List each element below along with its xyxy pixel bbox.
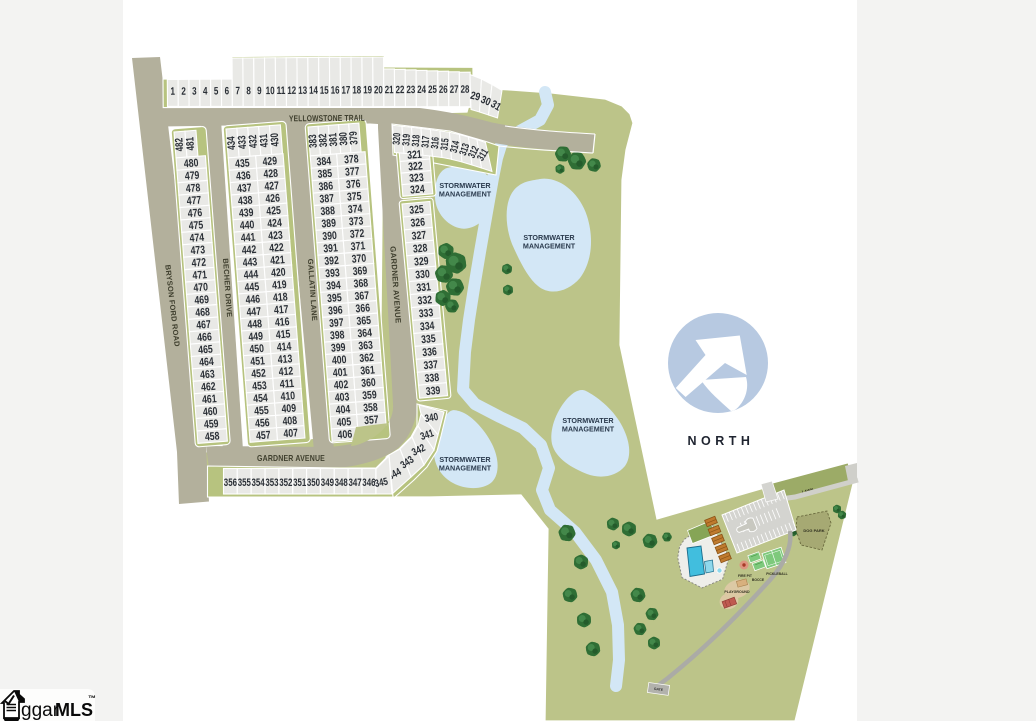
svg-text:476: 476 (187, 207, 202, 220)
svg-text:324: 324 (410, 183, 426, 196)
svg-text:462: 462 (201, 381, 216, 394)
svg-text:479: 479 (184, 170, 199, 183)
svg-text:399: 399 (331, 342, 346, 355)
svg-text:412: 412 (278, 365, 293, 378)
svg-text:453: 453 (252, 380, 267, 393)
svg-text:364: 364 (357, 327, 373, 340)
svg-text:329: 329 (414, 255, 430, 268)
svg-text:11: 11 (277, 85, 286, 97)
svg-text:372: 372 (349, 228, 364, 241)
svg-text:436: 436 (236, 170, 251, 183)
svg-text:332: 332 (417, 294, 433, 307)
svg-text:475: 475 (188, 219, 203, 232)
svg-text:397: 397 (329, 317, 344, 330)
svg-text:9: 9 (257, 85, 262, 97)
svg-text:478: 478 (185, 182, 200, 195)
svg-text:PLAYGROUND: PLAYGROUND (724, 590, 750, 594)
svg-text:472: 472 (191, 257, 206, 270)
svg-text:442: 442 (241, 244, 256, 257)
svg-text:331: 331 (416, 281, 432, 294)
svg-text:421: 421 (270, 254, 285, 267)
svg-text:456: 456 (255, 417, 270, 430)
svg-text:408: 408 (282, 415, 297, 428)
svg-text:356: 356 (224, 477, 237, 489)
svg-text:27: 27 (450, 84, 459, 96)
svg-text:18: 18 (352, 84, 361, 96)
svg-text:471: 471 (192, 269, 207, 282)
svg-text:438: 438 (238, 194, 253, 207)
svg-text:473: 473 (190, 244, 205, 257)
svg-text:387: 387 (319, 193, 334, 206)
svg-text:MANAGEMENT: MANAGEMENT (439, 190, 492, 199)
svg-text:12: 12 (287, 85, 296, 97)
svg-text:349: 349 (321, 477, 334, 489)
svg-text:352: 352 (279, 477, 292, 489)
svg-text:409: 409 (281, 403, 296, 416)
svg-text:440: 440 (239, 219, 254, 232)
svg-text:328: 328 (412, 242, 428, 255)
svg-text:419: 419 (272, 279, 287, 292)
svg-text:369: 369 (352, 265, 367, 278)
svg-text:14: 14 (309, 85, 318, 97)
svg-text:447: 447 (246, 306, 261, 319)
svg-text:336: 336 (422, 346, 438, 359)
svg-text:403: 403 (334, 391, 349, 404)
svg-text:466: 466 (197, 331, 212, 344)
svg-text:379: 379 (348, 131, 361, 145)
svg-text:465: 465 (198, 344, 213, 357)
svg-text:460: 460 (203, 406, 218, 419)
svg-text:444: 444 (243, 269, 259, 282)
svg-text:424: 424 (267, 217, 283, 230)
svg-text:4: 4 (203, 86, 208, 98)
svg-text:377: 377 (345, 166, 360, 179)
svg-text:334: 334 (419, 320, 435, 333)
svg-text:439: 439 (239, 207, 254, 220)
svg-text:5: 5 (214, 85, 219, 97)
svg-text:373: 373 (348, 215, 363, 228)
svg-text:23: 23 (406, 84, 415, 96)
svg-text:371: 371 (350, 240, 365, 253)
svg-text:337: 337 (423, 359, 439, 372)
svg-text:402: 402 (333, 379, 348, 392)
svg-text:YELLOWSTONE TRAIL: YELLOWSTONE TRAIL (289, 113, 365, 124)
svg-text:22: 22 (396, 84, 405, 96)
svg-text:448: 448 (247, 318, 262, 331)
svg-text:384: 384 (316, 155, 332, 168)
svg-text:362: 362 (359, 352, 374, 365)
svg-text:437: 437 (237, 182, 252, 195)
svg-text:348: 348 (335, 477, 348, 489)
svg-text:360: 360 (361, 377, 376, 390)
svg-text:13: 13 (298, 85, 307, 97)
svg-text:385: 385 (317, 168, 332, 181)
svg-text:430: 430 (269, 133, 282, 147)
svg-text:477: 477 (186, 195, 201, 208)
svg-text:446: 446 (245, 293, 260, 306)
svg-text:467: 467 (196, 319, 211, 332)
svg-text:338: 338 (424, 372, 440, 385)
svg-text:454: 454 (253, 392, 269, 405)
svg-text:441: 441 (240, 232, 255, 245)
svg-text:347: 347 (349, 477, 362, 489)
svg-text:443: 443 (242, 256, 257, 269)
svg-text:361: 361 (360, 364, 375, 377)
svg-text:404: 404 (335, 404, 351, 417)
svg-text:464: 464 (199, 356, 215, 369)
svg-text:396: 396 (328, 304, 343, 317)
svg-text:426: 426 (265, 192, 280, 205)
svg-text:389: 389 (321, 217, 336, 230)
svg-text:MLS: MLS (55, 700, 93, 720)
svg-text:MANAGEMENT: MANAGEMENT (562, 425, 615, 434)
svg-text:363: 363 (358, 340, 373, 353)
svg-text:10: 10 (266, 85, 275, 97)
svg-text:406: 406 (337, 429, 352, 442)
svg-text:470: 470 (193, 281, 208, 294)
svg-text:354: 354 (252, 477, 265, 489)
svg-text:378: 378 (344, 153, 359, 166)
svg-text:398: 398 (330, 329, 345, 342)
svg-text:388: 388 (320, 205, 335, 218)
svg-text:25: 25 (428, 84, 437, 96)
svg-text:417: 417 (274, 304, 289, 317)
svg-text:459: 459 (204, 418, 219, 431)
svg-text:370: 370 (351, 253, 366, 266)
svg-text:351: 351 (293, 477, 306, 489)
svg-text:429: 429 (262, 155, 277, 168)
svg-text:333: 333 (418, 307, 434, 320)
svg-text:26: 26 (439, 84, 448, 96)
svg-text:24: 24 (417, 84, 426, 96)
svg-text:481: 481 (184, 137, 197, 151)
svg-text:MANAGEMENT: MANAGEMENT (439, 464, 492, 473)
svg-text:458: 458 (205, 430, 220, 443)
svg-text:400: 400 (332, 354, 347, 367)
svg-text:™: ™ (88, 694, 96, 703)
svg-text:427: 427 (264, 180, 279, 193)
svg-text:435: 435 (235, 157, 250, 170)
svg-text:7: 7 (235, 85, 240, 97)
svg-text:414: 414 (276, 341, 292, 354)
svg-text:469: 469 (194, 294, 209, 307)
svg-text:15: 15 (320, 85, 329, 97)
svg-text:FIRE PIT: FIRE PIT (738, 574, 753, 578)
svg-text:386: 386 (318, 180, 333, 193)
svg-text:8: 8 (246, 85, 251, 97)
svg-text:455: 455 (254, 405, 269, 418)
svg-text:391: 391 (323, 242, 338, 255)
svg-text:411: 411 (279, 378, 294, 391)
svg-text:457: 457 (256, 429, 271, 442)
svg-text:463: 463 (200, 368, 215, 381)
svg-text:393: 393 (325, 267, 340, 280)
svg-text:468: 468 (195, 306, 210, 319)
svg-text:327: 327 (411, 229, 427, 242)
svg-text:474: 474 (189, 232, 205, 245)
svg-text:415: 415 (275, 328, 290, 341)
svg-text:326: 326 (410, 217, 426, 230)
svg-text:405: 405 (336, 416, 351, 429)
svg-text:3: 3 (192, 86, 197, 98)
svg-text:394: 394 (326, 280, 342, 293)
svg-text:423: 423 (268, 229, 283, 242)
svg-text:6: 6 (225, 85, 230, 97)
svg-text:28: 28 (461, 84, 470, 96)
svg-text:422: 422 (269, 242, 284, 255)
svg-text:335: 335 (421, 333, 437, 346)
svg-text:418: 418 (273, 291, 288, 304)
svg-text:395: 395 (327, 292, 342, 305)
svg-text:413: 413 (277, 353, 292, 366)
svg-text:366: 366 (355, 302, 370, 315)
svg-text:16: 16 (331, 85, 340, 97)
svg-text:358: 358 (363, 402, 378, 415)
svg-text:1: 1 (170, 86, 175, 98)
svg-text:NORTH: NORTH (688, 434, 755, 448)
svg-text:450: 450 (249, 343, 264, 356)
svg-text:374: 374 (347, 203, 363, 216)
svg-text:21: 21 (385, 84, 394, 96)
svg-text:20: 20 (374, 84, 383, 96)
svg-text:330: 330 (415, 268, 431, 281)
svg-text:DOG PARK: DOG PARK (803, 528, 824, 533)
svg-text:375: 375 (347, 191, 362, 204)
svg-text:340: 340 (424, 411, 439, 425)
svg-text:416: 416 (275, 316, 290, 329)
svg-text:ggar: ggar (21, 700, 60, 721)
svg-text:350: 350 (307, 477, 320, 489)
svg-text:19: 19 (363, 84, 372, 96)
svg-text:17: 17 (341, 85, 350, 97)
svg-text:410: 410 (280, 390, 295, 403)
svg-text:359: 359 (362, 389, 377, 402)
svg-text:452: 452 (251, 368, 266, 381)
svg-text:451: 451 (250, 355, 265, 368)
svg-text:425: 425 (266, 205, 281, 218)
svg-text:480: 480 (184, 157, 199, 170)
svg-text:390: 390 (322, 230, 337, 243)
svg-text:325: 325 (409, 204, 425, 217)
svg-text:376: 376 (346, 178, 361, 191)
svg-text:401: 401 (332, 367, 347, 380)
svg-text:BOCCE: BOCCE (752, 578, 765, 582)
svg-text:368: 368 (353, 277, 368, 290)
svg-text:420: 420 (271, 267, 286, 280)
svg-text:355: 355 (238, 477, 251, 489)
svg-text:449: 449 (248, 330, 263, 343)
svg-text:461: 461 (202, 393, 217, 406)
svg-text:445: 445 (244, 281, 259, 294)
svg-text:367: 367 (354, 290, 369, 303)
svg-text:353: 353 (265, 477, 278, 489)
svg-text:392: 392 (324, 255, 339, 268)
svg-text:2: 2 (181, 86, 186, 98)
svg-text:407: 407 (283, 427, 298, 440)
svg-text:PICKLEBALL: PICKLEBALL (766, 572, 787, 576)
svg-text:428: 428 (263, 168, 278, 181)
svg-text:MANAGEMENT: MANAGEMENT (523, 242, 576, 251)
svg-text:GARDNER AVENUE: GARDNER AVENUE (257, 453, 325, 463)
svg-text:339: 339 (425, 385, 441, 398)
svg-text:365: 365 (356, 315, 371, 328)
